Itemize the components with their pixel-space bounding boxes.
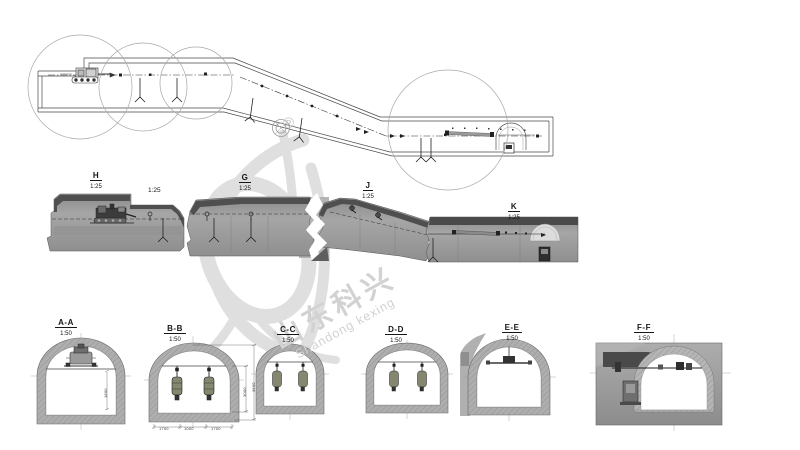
roadheader-icon xyxy=(60,68,115,83)
cross-section-dd xyxy=(361,340,453,419)
section-h-view xyxy=(47,194,184,251)
cross-section-ee xyxy=(460,333,556,421)
section-k-view xyxy=(426,217,578,262)
cabinet-icon xyxy=(539,247,550,261)
cross-section-ff xyxy=(590,334,731,431)
cross-section-aa xyxy=(31,333,131,430)
plan-view xyxy=(28,35,553,190)
cross-section-cc xyxy=(251,340,329,420)
conveyor-icon xyxy=(445,128,535,138)
bend-marker-icon xyxy=(273,120,290,137)
section-g-view xyxy=(187,197,314,256)
section-j-view xyxy=(318,198,431,261)
cabinet-icon xyxy=(620,381,641,405)
cross-section-bb xyxy=(144,336,256,429)
plan-niche xyxy=(496,123,526,153)
drawing-canvas xyxy=(0,0,800,450)
